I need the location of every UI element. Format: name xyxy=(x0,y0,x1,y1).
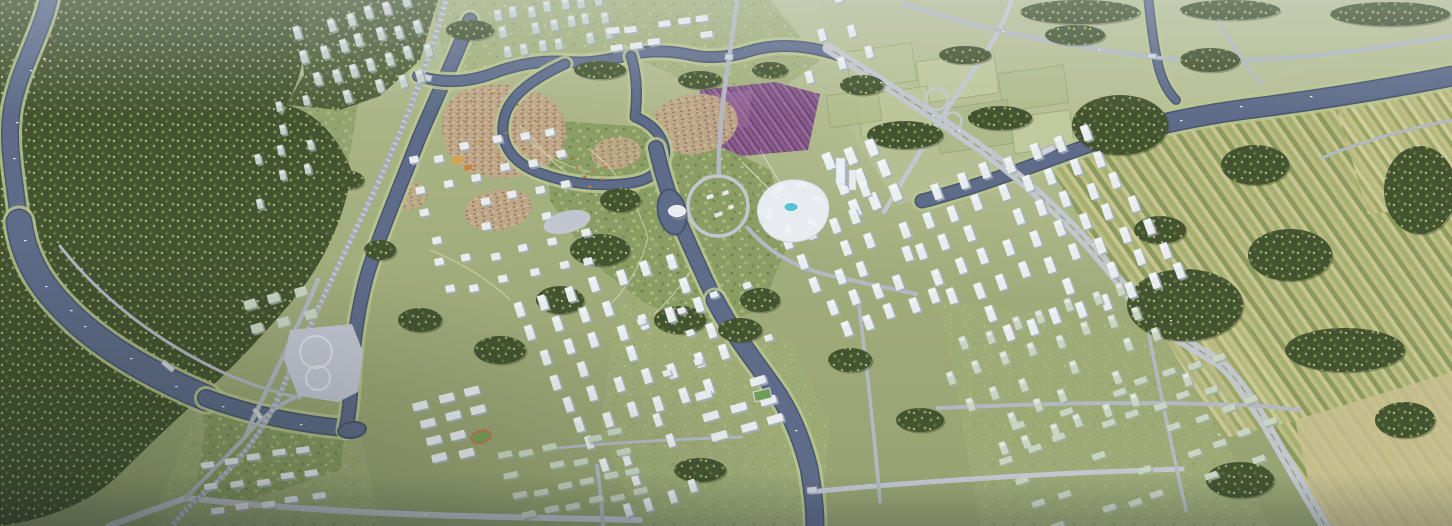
masterplan-aerial-render xyxy=(0,0,1452,526)
aerial-masterplan-photo xyxy=(0,0,1452,526)
cool-tint xyxy=(0,0,1452,526)
